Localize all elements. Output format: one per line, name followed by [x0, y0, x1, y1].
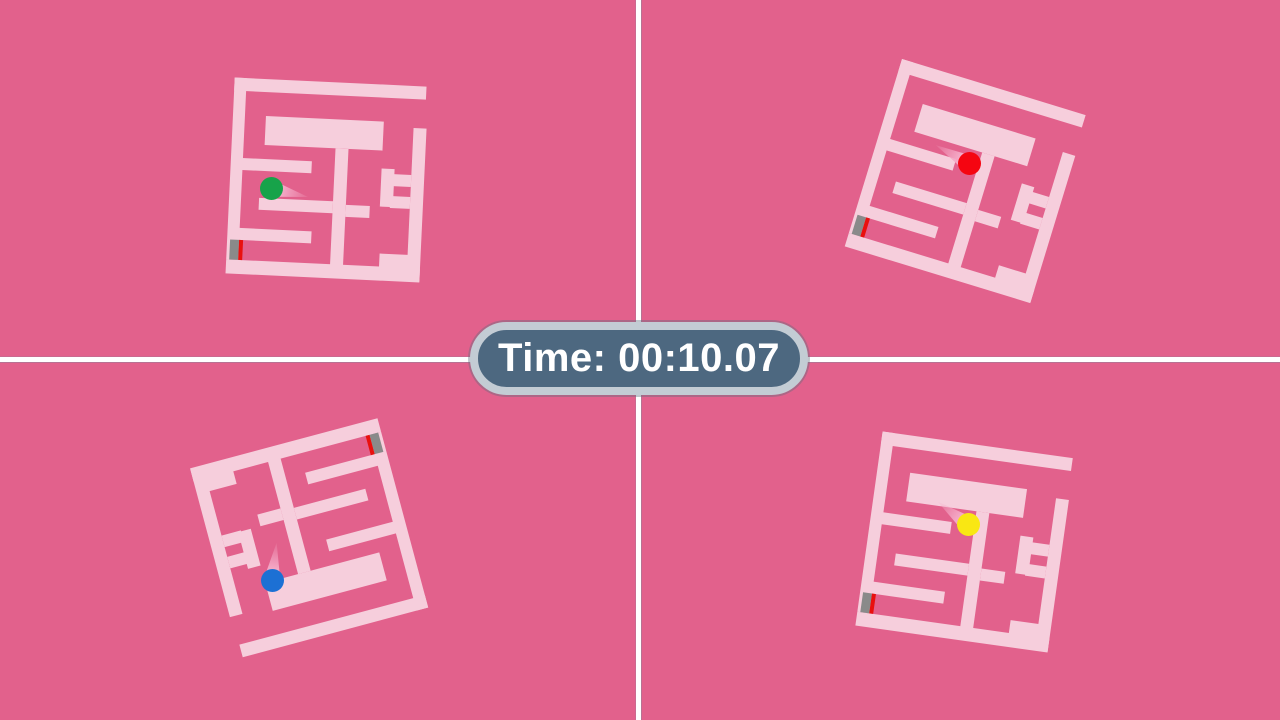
maze-top-right — [844, 58, 1087, 303]
game-screen: Time: 00:10.07 — [0, 0, 1280, 720]
maze-bottom-left — [190, 417, 428, 657]
maze-wall — [1030, 542, 1049, 556]
maze-top-left — [225, 77, 428, 283]
maze-wall — [881, 431, 1073, 471]
maze-wall — [863, 205, 938, 238]
maze-bottom-right — [855, 431, 1075, 653]
maze-wall — [884, 138, 956, 171]
timer-label: Time: 00:10.07 — [498, 336, 780, 381]
maze-wall — [892, 181, 966, 214]
maze-wall — [1020, 212, 1043, 229]
maze-wall — [294, 488, 369, 519]
maze-wall — [980, 568, 1005, 583]
maze-wall — [906, 472, 1027, 517]
player-ball-green — [260, 177, 283, 200]
maze-wall — [1028, 191, 1049, 208]
goal-marker-stripe — [238, 239, 243, 259]
maze-wall — [975, 209, 1001, 227]
maze-wall — [227, 552, 247, 568]
maze-wall — [378, 253, 410, 280]
maze-wall — [257, 508, 283, 526]
maze-wall — [326, 521, 399, 551]
maze-wall — [239, 594, 428, 656]
maze-wall — [239, 157, 311, 172]
maze-wall — [265, 116, 384, 151]
player-ball-red — [958, 152, 981, 175]
maze-wall — [390, 196, 411, 209]
maze-wall — [259, 197, 333, 212]
maze-wall — [345, 204, 370, 217]
timer-badge: Time: 00:10.07 — [470, 322, 808, 395]
maze-wall — [1007, 620, 1041, 650]
player-ball-yellow — [957, 513, 980, 536]
maze-wall — [894, 553, 969, 575]
maze-wall — [879, 511, 952, 533]
maze-wall — [236, 227, 311, 243]
maze-wall — [393, 174, 412, 187]
player-ball-blue — [261, 569, 284, 592]
maze-wall — [234, 77, 426, 99]
maze-wall — [1025, 563, 1046, 578]
maze-wall — [305, 453, 381, 484]
maze-wall — [869, 581, 945, 603]
